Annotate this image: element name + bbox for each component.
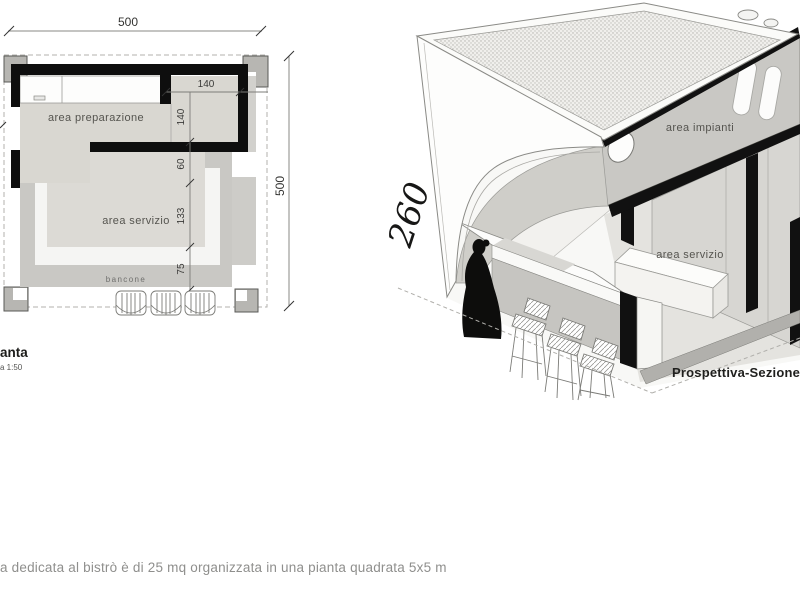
floor-plan: area preparazione area servizio bancone … <box>0 15 294 372</box>
architectural-sheet: area preparazione area servizio bancone … <box>0 0 800 598</box>
perspective-title: Prospettiva-Sezione <box>672 365 800 380</box>
wall-room-divider <box>160 75 171 104</box>
wall-left-lower <box>11 150 20 188</box>
bar-counter-side <box>637 297 662 369</box>
plan-room-fills <box>20 76 256 287</box>
plan-title-fragment: anta <box>0 345 28 360</box>
plan-stool <box>116 291 146 315</box>
dim-500-top: 500 <box>118 15 138 29</box>
label-area-preparazione: area preparazione <box>48 112 144 124</box>
roof-vent-small <box>764 19 778 27</box>
label-area-impianti: area impianti <box>666 122 734 134</box>
dim-60: 60 <box>176 158 187 170</box>
dim-260-height: 260 <box>380 178 438 253</box>
plan-stool <box>185 291 215 315</box>
person-hair-bun <box>483 240 490 247</box>
dim-140-vertical: 140 <box>176 108 187 125</box>
sheet-caption: a dedicata al bistrò è di 25 mq organizz… <box>0 560 447 575</box>
plan-scale-fragment: a 1:50 <box>0 363 23 372</box>
dim-tick-left-edge <box>0 122 6 128</box>
wall-top <box>11 64 248 75</box>
plan-worktop <box>20 76 161 103</box>
dim-140-horizontal: 140 <box>198 79 215 90</box>
wall-left-upper <box>11 64 20 107</box>
plan-stool <box>151 291 181 315</box>
passage-floor <box>20 142 90 183</box>
label-area-servizio-plan: area servizio <box>102 215 170 227</box>
right-wall-outer-face <box>248 76 256 152</box>
sink-symbol <box>34 96 45 100</box>
plan-stools <box>116 291 215 315</box>
pillar-bottom-left-notch <box>13 288 27 300</box>
dim-500-right: 500 <box>273 176 287 196</box>
roof-vent-large <box>738 10 758 20</box>
right-gray-block <box>232 177 256 265</box>
dim-133: 133 <box>176 207 187 224</box>
section-cut-wall-strip <box>746 153 758 313</box>
drawing-canvas: area preparazione area servizio bancone … <box>0 0 800 598</box>
bar-counter-cut-cap <box>620 291 637 369</box>
perspective-section: area impianti area servizio <box>380 3 800 400</box>
wall-middle <box>90 142 248 152</box>
pillar-bottom-right-notch <box>236 290 247 301</box>
wall-right <box>238 64 248 152</box>
dim-75: 75 <box>176 263 187 275</box>
label-area-servizio-perspective: area servizio <box>656 249 724 261</box>
label-bancone: bancone <box>106 275 147 284</box>
